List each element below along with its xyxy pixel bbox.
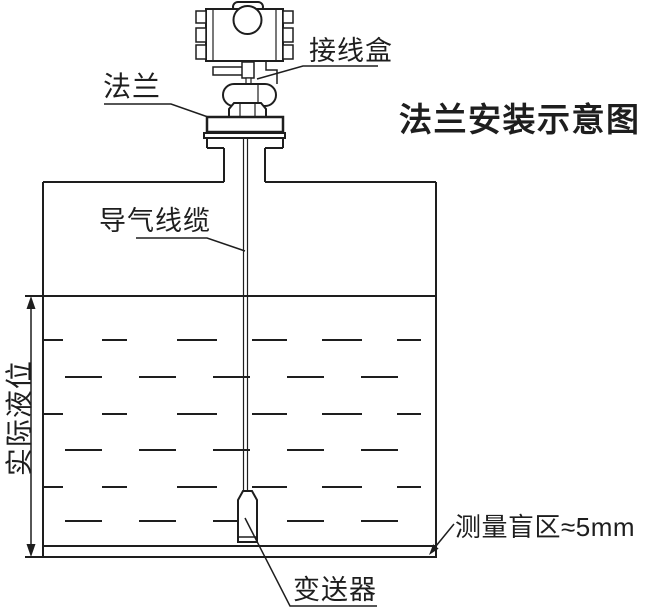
junction-box-leader xyxy=(257,66,378,79)
diagram-title: 法兰安装示意图 xyxy=(399,101,641,139)
housing-step xyxy=(266,61,277,84)
vent-bracket xyxy=(213,67,245,75)
housing-dome xyxy=(234,6,262,34)
actual-liquid-level-label: 实际液位 xyxy=(4,359,36,477)
flange-installation-diagram: 法兰 接线盒 法兰安装示意图 导气线缆 实际液位 测量盲区≈5mm 变送器 xyxy=(0,0,650,612)
cable-leader xyxy=(136,238,245,251)
flange-gasket-plate xyxy=(204,133,285,138)
blind-zone-leader xyxy=(436,524,454,546)
flange-drawing xyxy=(204,117,285,182)
tank-drawing xyxy=(25,182,437,557)
vent-block xyxy=(242,62,254,78)
tank-nozzle xyxy=(207,138,283,182)
transmitter-head-drawing xyxy=(196,2,293,117)
flange-leader xyxy=(104,104,208,117)
air-guide-cable-drawing xyxy=(244,138,248,490)
air-guide-cable-label: 导气线缆 xyxy=(99,206,211,237)
flange-label: 法兰 xyxy=(103,71,161,103)
flange-plate xyxy=(207,117,283,132)
junction-box-label: 接线盒 xyxy=(309,36,393,67)
transmitter-label: 变送器 xyxy=(293,575,377,606)
arrowhead-down xyxy=(27,544,36,557)
arrowhead-up xyxy=(27,296,36,309)
blind-zone-label: 测量盲区≈5mm xyxy=(455,513,635,543)
liquid-dashes xyxy=(43,340,436,521)
hex-nut xyxy=(229,103,266,117)
